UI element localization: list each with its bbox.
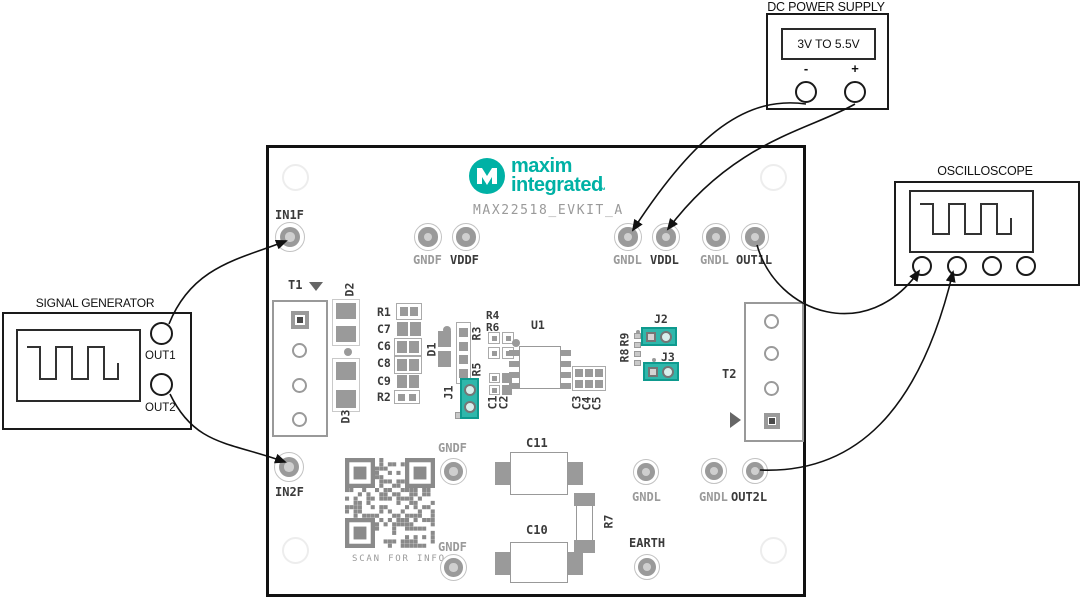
label-in2f: IN2F [275,485,304,499]
via-dot [636,330,640,334]
resistor-r8 [634,360,641,366]
t2-pin-hole [764,314,779,329]
label-r3: R3 [471,319,484,349]
pin1-marker-icon [309,282,323,291]
testpoint-gndl-top1 [614,223,642,251]
board-model-label: MAX22518_EVKIT_A [473,203,624,218]
via-dot [344,348,352,356]
mounting-hole [760,537,787,564]
t1-pin-hole [292,378,307,393]
capacitor-c1 [489,373,500,383]
label-out2l: OUT2L [731,490,767,504]
testpoint-in1f [275,222,305,252]
resistor-r9 [634,342,641,348]
ic-pin [509,361,519,367]
mounting-hole [282,537,309,564]
label-j1: J1 [443,378,456,408]
resistor-r2 [394,390,420,404]
capacitor-c11 [510,452,568,495]
label-d1: D1 [426,335,439,365]
sig-gen-out2-terminal [150,373,173,396]
label-t2: T2 [722,367,736,381]
capacitor-c7 [410,322,421,336]
power-supply-title: DC POWER SUPPLY [766,0,886,14]
resistor-r7 [576,505,593,541]
testpoint-gndl-bot2 [701,458,727,484]
diode-d2 [332,299,360,346]
label-c11: C11 [526,436,548,450]
label-c7: C7 [377,322,391,336]
label-in1f: IN1F [275,208,304,222]
resistor-r7 [574,540,595,553]
label-gndl-bot2: GNDL [699,490,728,504]
negative-terminal [795,81,817,103]
out1-label: OUT1 [145,350,176,362]
signal-generator-screen [16,329,141,402]
t2-pin-hole [764,346,779,361]
resistor-r6 [488,347,500,359]
testpoint-gndf-bot [440,554,467,581]
label-gndf-top: GNDF [413,253,442,267]
label-gndl-top1: GNDL [613,253,642,267]
scope-channel-1-terminal [912,256,932,276]
label-r7: R7 [603,507,616,537]
ic-pin [561,383,571,389]
out2-label: OUT2 [145,402,176,414]
scope-channel-2-terminal [947,256,967,276]
label-gndf-bot: GNDF [438,540,467,554]
mounting-hole [760,164,787,191]
square-wave-icon [911,192,1028,247]
label-gndl-top2: GNDL [700,253,729,267]
sig-gen-out1-terminal [150,322,173,345]
capacitor-c8 [394,356,422,374]
capacitor-c10 [510,542,568,583]
testpoint-vddf [452,223,480,251]
t1-pin-hole [292,343,307,358]
testpoint-out2l [742,458,768,484]
resistor-r1 [396,303,422,320]
label-r8: R8 [619,341,632,371]
capacitor-c2 [502,373,512,383]
jumper-j1 [460,378,479,419]
positive-terminal-label: + [848,61,862,76]
label-vddl: VDDL [650,253,679,267]
label-c6: C6 [377,339,391,353]
mounting-hole [282,164,309,191]
diode-d1 [438,331,451,347]
diode-d1 [438,351,451,367]
signal-generator-title: SIGNAL GENERATOR [2,296,188,310]
power-supply-range-display: 3V TO 5.5V [781,28,876,60]
testpoint-earth [634,554,660,580]
label-u1: U1 [531,318,545,332]
testpoint-vddl [652,223,680,251]
label-r1: R1 [377,305,391,319]
capacitor-c6 [394,338,422,356]
label-vddf: VDDF [450,253,479,267]
label-c5: C5 [591,389,604,419]
testpoint-gndl-bot1 [633,459,659,485]
capacitor-c11 [567,462,583,485]
trademark-symbol: ™ [598,186,606,195]
oscilloscope-title: OSCILLOSCOPE [894,164,1076,178]
ic-pin [561,372,571,378]
label-gndf-mid: GNDF [438,441,467,455]
label-t1: T1 [288,278,302,292]
label-c10: C10 [526,523,548,537]
ic-u1 [519,346,561,389]
resistor-r4 [488,332,500,344]
t2-pin1-pad [764,413,780,429]
qr-code [345,457,435,549]
ic-pin [561,350,571,356]
scope-channel-4-terminal [1016,256,1036,276]
capacitor-c7 [397,322,408,336]
capacitor-c9 [397,375,407,388]
resistor-r8 [634,351,641,357]
t1-pin-hole [292,412,307,427]
negative-terminal-label: - [799,61,813,76]
label-c8: C8 [377,356,391,370]
label-d3: D3 [340,402,353,432]
jumper-j2 [641,327,677,346]
brand-name-line2: integrated [511,174,603,197]
capacitor-c10 [567,552,583,575]
testpoint-out1l [741,223,769,251]
testpoint-in2f [274,452,304,482]
label-earth: EARTH [629,536,665,550]
testpoint-gndf-top [414,223,442,251]
ic-pin [561,361,571,367]
pin1-marker-icon [730,412,741,428]
capacitor-c9 [409,375,419,388]
qr-caption: SCAN FOR INFO [352,554,446,564]
t2-pin-hole [764,381,779,396]
jumper-j3 [643,362,679,381]
testpoint-gndf-mid [440,458,467,485]
label-j2: J2 [654,312,668,326]
oscilloscope-screen [909,190,1034,253]
square-wave-icon [18,331,135,396]
label-gndl-bot1: GNDL [632,490,661,504]
t1-pin1-pad [291,311,309,329]
positive-terminal [844,81,866,103]
capacitor-c11 [495,462,511,485]
capacitor-c10 [495,552,511,575]
test-setup-diagram: DC POWER SUPPLY 3V TO 5.5V - + OSCILLOSC… [0,0,1080,602]
scope-channel-3-terminal [982,256,1002,276]
label-c2: C2 [498,388,511,418]
voltage-range-label: 3V TO 5.5V [797,37,859,51]
ic-pin [509,350,519,356]
label-out1l: OUT1L [736,253,772,267]
label-r2: R2 [377,390,391,404]
testpoint-gndl-top2 [702,223,730,251]
maxim-logo-icon [469,158,505,194]
label-c9: C9 [377,374,391,388]
